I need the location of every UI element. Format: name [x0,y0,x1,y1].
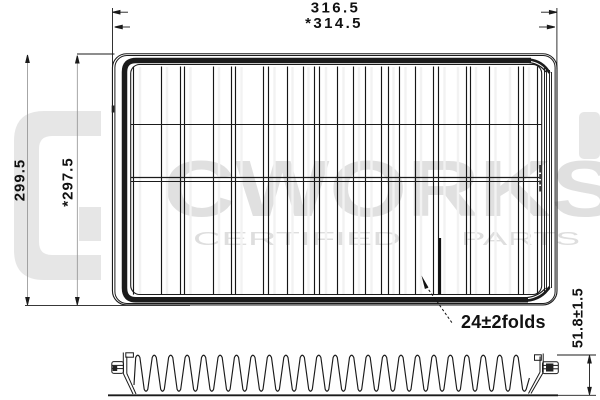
svg-text:24±2folds: 24±2folds [461,312,546,332]
svg-text:51.8±1.5: 51.8±1.5 [571,288,587,348]
svg-text:316.5: 316.5 [311,0,361,16]
svg-text:*297.5: *297.5 [60,157,77,206]
svg-text:*314.5: *314.5 [305,15,363,32]
svg-text:299.5: 299.5 [12,159,29,202]
svg-text:PARTS: PARTS [461,229,580,249]
svg-text:CERTIFIED: CERTIFIED [193,229,401,249]
